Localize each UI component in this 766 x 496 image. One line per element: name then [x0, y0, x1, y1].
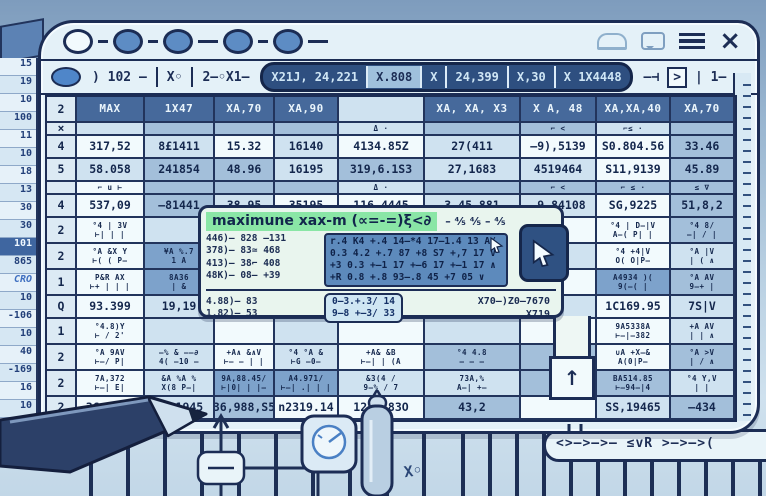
formula-pill-segment[interactable]: X,30 — [509, 66, 556, 88]
row-header[interactable]: 4 — [47, 136, 77, 159]
backdrop-row-number: 19 — [0, 76, 36, 94]
window-dot-button[interactable] — [113, 29, 143, 54]
titlebar: × — [41, 23, 757, 61]
cell[interactable]: S0.804.56 — [597, 136, 671, 159]
ruler-ticks — [743, 75, 751, 419]
cell[interactable]: 1,91945 — [145, 397, 215, 420]
cell[interactable]: S11,9139 — [597, 159, 671, 182]
cell[interactable] — [77, 123, 145, 136]
cell[interactable]: 9A,88.45/ ⊢|0| | |– — [215, 371, 275, 397]
backdrop-row-number: -106 — [0, 310, 36, 328]
cell[interactable]: °A |V | ( ∧ — [671, 244, 735, 270]
cell[interactable] — [145, 182, 215, 195]
row-header[interactable]: 2 — [47, 371, 77, 397]
cell[interactable]: 4519464 — [521, 159, 597, 182]
row-header[interactable]: × — [47, 123, 77, 136]
column-header[interactable]: XA,90 — [275, 97, 339, 123]
tooltip-tail — [553, 316, 591, 358]
tooltip-bottom-left-lines: 4.88)– 831.82)– 53 — [206, 296, 324, 321]
formula-right-items: –⊣>| 1– — [639, 67, 732, 88]
tooltip-left-lines: 446)– 828 –131378)– 83≃ 468413)– 38⌐ 408… — [206, 233, 324, 287]
cell[interactable]: ⌐ u ⊢ — [77, 182, 145, 195]
backdrop-row-number: 100 — [0, 112, 36, 130]
cell[interactable]: &A %A % X(8 P–| — [145, 371, 215, 397]
backdrop-row-number: 40 — [0, 346, 36, 364]
backdrop-row-number: 70 — [0, 418, 36, 436]
backdrop-row-number: 865 — [0, 256, 36, 274]
column-header[interactable]: XA, XA, X3 — [425, 97, 521, 123]
tooltip-title-tail: – ⅘ ⅘ – ⅘ — [445, 215, 505, 228]
table-row: ⌐ u ⊢Δ ·⌐ <⌐ ≤ ·≤ ∇ — [47, 182, 735, 195]
formula-bar: ) 102 –X◦2–◦X1– X21J, 24,221X.808X24,399… — [41, 61, 757, 95]
column-header[interactable]: XA,70 — [215, 97, 275, 123]
backdrop-row-number: 30 — [0, 220, 36, 238]
cell[interactable]: 9A5338A ⊢—|–382 — [597, 319, 671, 345]
backdrop-row-number: 15 — [0, 58, 36, 76]
cell[interactable]: °A AV 9—+ | — [671, 270, 735, 296]
cell[interactable]: ∪A +X–& A(0|P— — [597, 345, 671, 371]
tooltip-bottom-left-line: 1.82)– 53 — [206, 308, 324, 320]
formula-bar-item[interactable]: ) 102 – — [92, 70, 147, 85]
next-button[interactable]: > — [667, 67, 687, 88]
row-header[interactable]: 1 — [47, 270, 77, 296]
backdrop-row-number: 10 — [0, 292, 36, 310]
background-spreadsheet: 151910100111018133030101865CRO10-1061040… — [0, 18, 38, 496]
cloud-icon[interactable] — [597, 33, 627, 50]
cursor-icon — [532, 239, 556, 267]
cell[interactable]: BA514.85 ⊢—94–|4 — [597, 371, 671, 397]
formula-pill-segment[interactable]: X — [422, 66, 447, 88]
tooltip-boxed-line: 9–8 +–3/ 33 — [332, 308, 395, 320]
cell[interactable]: 1C169.95 — [597, 296, 671, 319]
column-header[interactable]: XA,70 — [671, 97, 735, 123]
cell[interactable]: 51,8,2 — [671, 195, 735, 218]
cell[interactable]: 319,6.1S3 — [339, 159, 425, 182]
tooltip-left-line: 446)– 828 –131 — [206, 233, 324, 245]
table-row: 2°A 9AV ⊢—/ P|–% & ––∂ 4( –10 –+A∧ &∧V ⊢… — [47, 345, 735, 371]
cell[interactable]: 36,9122 — [77, 397, 145, 420]
cell[interactable]: 241854 — [145, 159, 215, 182]
cursor-icon — [490, 237, 504, 253]
cell[interactable]: 15.32 — [215, 136, 275, 159]
chat-bubble-icon[interactable] — [641, 32, 665, 50]
tooltip-blue-line: +3 0.3 +–1 17 +–6 17 +–1 17 ∧ — [330, 260, 502, 272]
backdrop-row-number: 10 — [0, 328, 36, 346]
cell[interactable] — [275, 123, 339, 136]
window-dot-button[interactable] — [163, 29, 193, 54]
backdrop-row-number: 18 — [0, 166, 36, 184]
formula-pill-segment[interactable]: 24,399 — [447, 66, 508, 88]
backdrop-row-number: 13 — [0, 184, 36, 202]
cell[interactable]: 27,1683 — [425, 159, 521, 182]
cursor-box — [519, 224, 569, 282]
formula-pill[interactable]: X21J, 24,221X.808X24,399X,30X 1X4448 — [260, 62, 632, 92]
backdrop-row-number: -169 — [0, 364, 36, 382]
cell[interactable]: –434 — [671, 397, 735, 420]
cell[interactable]: SS,19465 — [597, 397, 671, 420]
cell[interactable]: 7S|V — [671, 296, 735, 319]
table-row: 2MAX1X47XA,70XA,90XA, XA, X3X A, 48XA,XA… — [47, 97, 735, 123]
cell[interactable] — [671, 123, 735, 136]
cell[interactable]: 73A,% A–| +– — [425, 371, 521, 397]
cell[interactable]: –% & ––∂ 4( –10 – — [145, 345, 215, 371]
cell[interactable] — [521, 397, 597, 420]
formula-pill-segment[interactable]: X.808 — [368, 66, 422, 88]
backdrop-row-number: 10 — [0, 400, 36, 418]
cell[interactable]: &3(4 / 9–% / 7 — [339, 371, 425, 397]
tooltip-left-line: 48K)– 08– +39 — [206, 270, 324, 282]
cell[interactable]: 4134.85Z — [339, 136, 425, 159]
cell[interactable]: 1243.83O — [339, 397, 425, 420]
cell[interactable]: 27(411 — [425, 136, 521, 159]
tooltip-right-line: X719 — [478, 308, 550, 321]
table-row: 236,91221,9194536,988,S5n2319.141243.83O… — [47, 397, 735, 420]
cell[interactable]: 33.46 — [671, 136, 735, 159]
formula-bar-item[interactable]: –⊣ — [644, 70, 660, 85]
cell[interactable] — [215, 123, 275, 136]
tooltip-blue-line: 0.3 4.2 +.7 87 +8 S7 +,7 17 V — [330, 248, 502, 260]
cell[interactable]: A4.971/ ⊢—| .| | | — [275, 371, 339, 397]
table-row: 4317,528£141115.32161404134.85Z27(411–9)… — [47, 136, 735, 159]
cell[interactable]: 7A,372 ⊢—| E| — [77, 371, 145, 397]
cell[interactable]: SG,9225 — [597, 195, 671, 218]
spreadsheet-window: × ) 102 –X◦2–◦X1– X21J, 24,221X.808X24,3… — [38, 20, 760, 434]
formula-pill-segment[interactable]: X21J, 24,221 — [263, 66, 368, 88]
row-header[interactable] — [47, 182, 77, 195]
cell[interactable] — [145, 123, 215, 136]
cell[interactable]: ⌐≤ · — [597, 123, 671, 136]
tail-arrow-box: ↑ — [549, 356, 595, 400]
formula-bar-item[interactable]: 2–◦X1– — [202, 70, 249, 85]
row-header[interactable]: 5 — [47, 159, 77, 182]
backdrop-row-number: 30 — [0, 202, 36, 220]
formula-left-items: ) 102 –X◦2–◦X1– — [87, 67, 254, 87]
cell[interactable]: n2319.14 — [275, 397, 339, 420]
name-box-icon[interactable] — [51, 67, 81, 87]
cell[interactable]: °4 +4|V O( O|P– — [597, 244, 671, 270]
divider — [156, 67, 158, 87]
backdrop-row-number: 16 — [0, 382, 36, 400]
cell[interactable]: 537,09 — [77, 195, 145, 218]
cell[interactable]: ⌐ < — [521, 123, 597, 136]
window-dot-button[interactable] — [223, 29, 253, 54]
cell[interactable]: 45.89 — [671, 159, 735, 182]
cell[interactable] — [425, 182, 521, 195]
cell[interactable]: °4 | D–|V A–( P| | — [597, 218, 671, 244]
cell[interactable]: 48.96 — [215, 159, 275, 182]
backdrop-row-number: 18 — [0, 436, 36, 454]
cell[interactable]: 16195 — [275, 159, 339, 182]
tooltip-right-lines: X70–)Z0–7670X719 — [478, 295, 556, 321]
column-header[interactable]: 1X47 — [145, 97, 215, 123]
cell[interactable]: 58.058 — [77, 159, 145, 182]
row-header[interactable]: 4 — [47, 195, 77, 218]
row-header[interactable]: 2 — [47, 397, 77, 420]
backdrop-row-number: 10 — [0, 148, 36, 166]
cell[interactable]: 8£1411 — [145, 136, 215, 159]
column-header[interactable]: X A, 48 — [521, 97, 597, 123]
backdrop-row-number: CRO — [0, 274, 36, 292]
row-header[interactable]: 1 — [47, 319, 77, 345]
formula-bar-item[interactable]: X◦ — [167, 70, 183, 85]
tooltip-blue-line: r.4 K4 +.4 14–*4 17–1.4 13 A/ — [330, 236, 502, 248]
row-header[interactable]: 2 — [47, 345, 77, 371]
cell[interactable]: +A& &B ⊢—| | (A — [339, 345, 425, 371]
formula-pill-segment[interactable]: X 1X4448 — [556, 66, 630, 88]
cell[interactable]: °4 | 3V ⊢| | | — [77, 218, 145, 244]
cell[interactable]: 43,2 — [425, 397, 521, 420]
cell[interactable]: A4934 )( 9(—( | — [597, 270, 671, 296]
cell[interactable]: ≤ ∇ — [671, 182, 735, 195]
cell[interactable]: °4 4.8 – – – — [425, 345, 521, 371]
cell[interactable]: °A &X Y ⊢( ( P– — [77, 244, 145, 270]
row-header[interactable]: 2 — [47, 97, 77, 123]
cell[interactable]: 16140 — [275, 136, 339, 159]
cell[interactable]: ⌐ ≤ · — [597, 182, 671, 195]
table-row: 558.05824185448.9616195319,6.1S327,16834… — [47, 159, 735, 182]
table-row: 27A,372 ⊢—| E|&A %A % X(8 P–|9A,88.45/ ⊢… — [47, 371, 735, 397]
table-row: ×Δ ·⌐ <⌐≤ · — [47, 123, 735, 136]
backdrop-row-number: 101 — [0, 238, 36, 256]
cell[interactable]: °4.8)Y ⊢ / 2' — [77, 319, 145, 345]
backdrop-row-number: 10 — [0, 94, 36, 112]
cell[interactable]: –9),5139 — [521, 136, 597, 159]
cell[interactable] — [275, 182, 339, 195]
tooltip-title: maximune xax-m (∝=-=)ξ<∂ — [206, 212, 437, 231]
cell[interactable]: °A 9AV ⊢—/ P| — [77, 345, 145, 371]
cell[interactable] — [425, 123, 521, 136]
xo-label: X◦ — [403, 461, 423, 481]
tooltip-blue-block: r.4 K4 +.4 14–*4 17–1.4 13 A/0.3 4.2 +.7… — [324, 233, 508, 287]
tooltip-left-line: 413)– 38⌐ 408 — [206, 258, 324, 270]
window-dot-button[interactable] — [273, 29, 303, 54]
row-header[interactable]: 2 — [47, 244, 77, 270]
up-arrow-icon: ↑ — [564, 366, 581, 390]
tooltip-boxed-lines: 0–3.+.3/ 149–8 +–3/ 33 — [324, 293, 403, 324]
row-header[interactable]: Q — [47, 296, 77, 319]
cell[interactable]: +A∧ &∧V ⊢— – | | — [215, 345, 275, 371]
cell[interactable]: °4 °A & ⊢G –0– — [275, 345, 339, 371]
column-header[interactable] — [339, 97, 425, 123]
row-header[interactable]: 2 — [47, 218, 77, 244]
column-header[interactable]: XA,XA,40 — [597, 97, 671, 123]
cell[interactable] — [215, 182, 275, 195]
column-header[interactable]: MAX — [77, 97, 145, 123]
menu-icon[interactable] — [679, 33, 705, 50]
divider — [191, 67, 193, 87]
cell[interactable]: Δ · — [339, 182, 425, 195]
cell[interactable]: 317,52 — [77, 136, 145, 159]
tooltip-boxed-line: 0–3.+.3/ 14 — [332, 296, 395, 308]
formula-tooltip[interactable]: maximune xax-m (∝=-=)ξ<∂ – ⅘ ⅘ – ⅘ 446)–… — [198, 205, 564, 318]
backdrop-row-numbers: 151910100111018133030101865CRO10-1061040… — [0, 58, 39, 454]
tooltip-left-line: 378)– 83≃ 468 — [206, 245, 324, 257]
tooltip-bottom-left-line: 4.88)– 83 — [206, 296, 324, 308]
backdrop-row-number: 11 — [0, 130, 36, 148]
cell[interactable]: °A >V | / ∧ — [671, 345, 735, 371]
cell[interactable]: P&R AX ⊢+ | | | — [77, 270, 145, 296]
tooltip-blue-line: +R 0.8 +.8 93–.8 45 +7 05 ∨ — [330, 272, 502, 284]
close-icon[interactable]: × — [719, 31, 741, 51]
cell[interactable]: °4 Y,V | | — [671, 371, 735, 397]
cell[interactable]: °4 8/ —| / | — [671, 218, 735, 244]
cell[interactable]: ⌐ < — [521, 182, 597, 195]
cell[interactable] — [145, 319, 215, 345]
cell[interactable]: 36,988,S5 — [215, 397, 275, 420]
window-dot-button[interactable] — [63, 29, 93, 54]
cell[interactable]: +A AV | | ∧ — [671, 319, 735, 345]
formula-bar-item[interactable]: | 1– — [695, 70, 726, 85]
tooltip-right-line: X70–)Z0–7670 — [478, 295, 550, 308]
cell[interactable]: Δ · — [339, 123, 425, 136]
cell[interactable]: 93.399 — [77, 296, 145, 319]
